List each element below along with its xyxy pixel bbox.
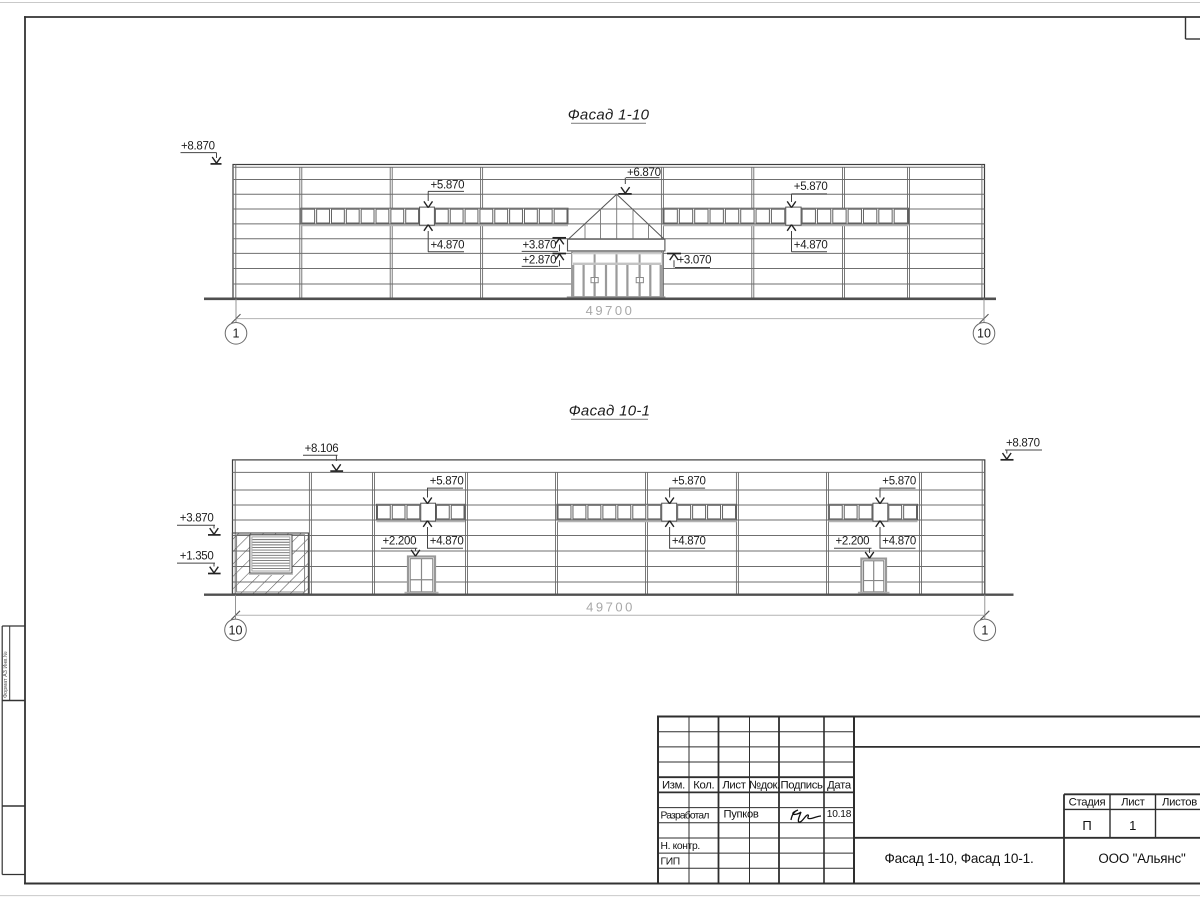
svg-text:+5.870: +5.870 bbox=[794, 181, 828, 193]
svg-text:+2.200: +2.200 bbox=[836, 536, 870, 548]
svg-text:№док.: №док. bbox=[749, 779, 780, 791]
svg-text:+8.106: +8.106 bbox=[305, 443, 339, 455]
svg-text:Подпись: Подпись bbox=[781, 779, 823, 791]
svg-text:+2.870: +2.870 bbox=[523, 254, 557, 266]
svg-text:+2.200: +2.200 bbox=[383, 536, 417, 548]
svg-text:+5.870: +5.870 bbox=[672, 476, 706, 488]
svg-text:10.18: 10.18 bbox=[827, 809, 852, 820]
svg-text:+4.870: +4.870 bbox=[431, 240, 465, 252]
svg-text:Кол.: Кол. bbox=[693, 779, 714, 791]
svg-text:П: П bbox=[1082, 818, 1091, 833]
svg-text:+4.870: +4.870 bbox=[430, 536, 464, 548]
svg-text:+8.870: +8.870 bbox=[1006, 437, 1040, 449]
svg-text:Фасад 10-1: Фасад 10-1 bbox=[569, 403, 651, 420]
svg-text:+5.870: +5.870 bbox=[431, 180, 465, 192]
svg-text:Изм.: Изм. bbox=[662, 779, 685, 791]
svg-text:Листов: Листов bbox=[1162, 796, 1197, 808]
svg-text:ГИП: ГИП bbox=[661, 856, 680, 867]
svg-text:Формат А3 Инв.№: Формат А3 Инв.№ bbox=[3, 651, 9, 698]
svg-text:Дата: Дата bbox=[827, 779, 852, 791]
svg-text:Н. контр.: Н. контр. bbox=[661, 841, 700, 852]
svg-text:+5.870: +5.870 bbox=[882, 476, 916, 488]
svg-text:10: 10 bbox=[229, 623, 243, 637]
svg-text:Фасад 1-10: Фасад 1-10 bbox=[568, 107, 650, 124]
svg-text:+4.870: +4.870 bbox=[794, 240, 828, 252]
svg-text:Стадия: Стадия bbox=[1069, 796, 1106, 808]
svg-text:Пупков: Пупков bbox=[723, 809, 758, 821]
svg-text:Лист: Лист bbox=[722, 779, 745, 791]
svg-text:+4.870: +4.870 bbox=[672, 536, 706, 548]
svg-text:1: 1 bbox=[981, 623, 988, 637]
svg-text:1: 1 bbox=[233, 327, 240, 341]
svg-text:+1.350: +1.350 bbox=[180, 550, 214, 562]
svg-text:+6.870: +6.870 bbox=[627, 167, 661, 179]
svg-text:49700: 49700 bbox=[586, 303, 635, 318]
svg-text:+3.870: +3.870 bbox=[523, 239, 557, 251]
svg-text:Разработал: Разработал bbox=[661, 810, 710, 822]
svg-text:+3.870: +3.870 bbox=[180, 512, 214, 524]
svg-text:1: 1 bbox=[1129, 818, 1136, 833]
svg-text:+3.070: +3.070 bbox=[678, 255, 712, 267]
svg-text:Фасад 1-10, Фасад 10-1.: Фасад 1-10, Фасад 10-1. bbox=[884, 851, 1033, 866]
svg-text:10: 10 bbox=[977, 327, 991, 341]
svg-text:ООО "Альянс": ООО "Альянс" bbox=[1098, 851, 1186, 866]
svg-text:+4.870: +4.870 bbox=[882, 536, 916, 548]
svg-text:+5.870: +5.870 bbox=[430, 476, 464, 488]
svg-text:+8.870: +8.870 bbox=[181, 141, 215, 153]
svg-text:49700: 49700 bbox=[586, 600, 635, 615]
svg-text:Лист: Лист bbox=[1121, 796, 1144, 808]
